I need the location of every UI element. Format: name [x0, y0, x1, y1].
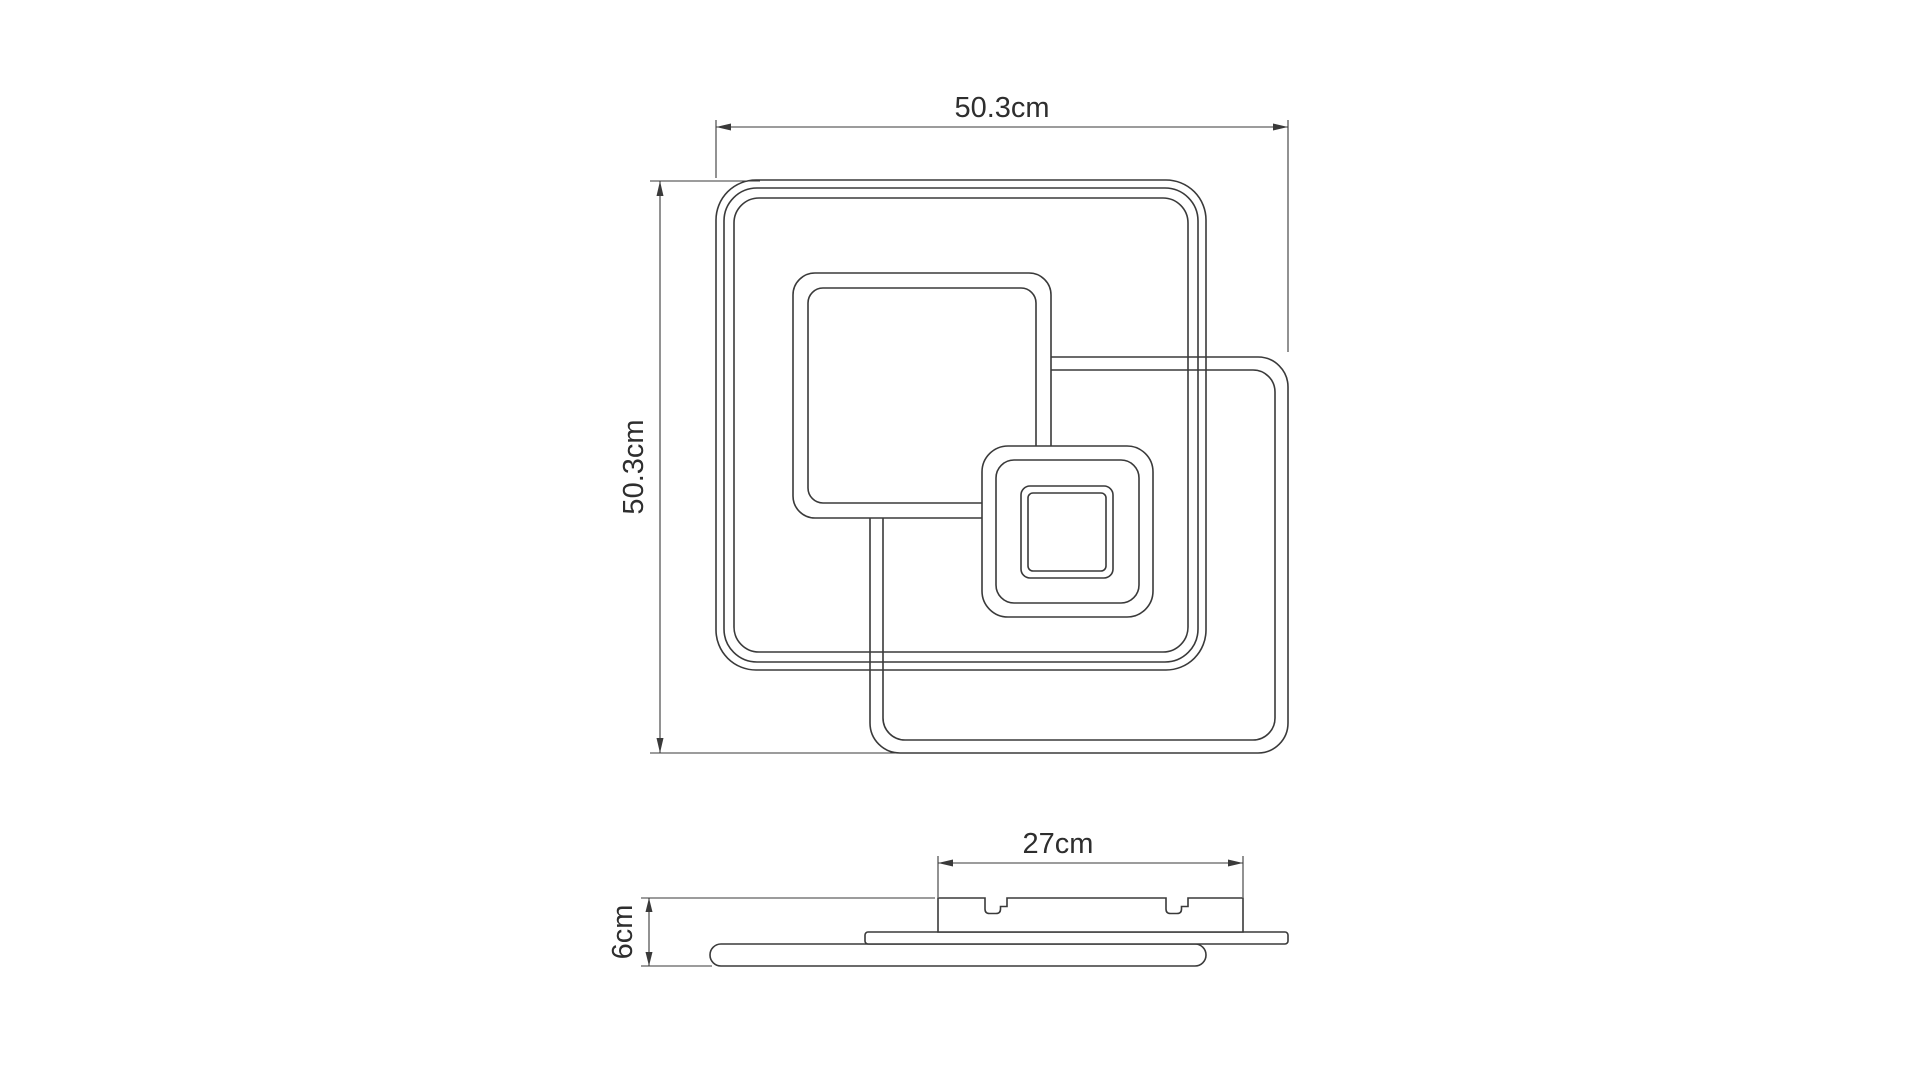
side-second-panel — [865, 932, 1288, 944]
top-view — [716, 180, 1288, 753]
arrowhead-left-icon — [716, 124, 731, 131]
plate-width-dimension-label: 27cm — [1023, 828, 1094, 860]
arrowhead-right-icon — [1273, 124, 1288, 131]
plate-width-dimension: 27cm — [938, 828, 1243, 897]
side-view — [710, 898, 1288, 966]
width-dimension-label: 50.3cm — [954, 92, 1049, 124]
arrowhead-down-icon — [646, 952, 653, 966]
side-main-panel — [710, 944, 1206, 966]
ceiling-lamp-dimension-drawing: 50.3cm 50.3cm 27cm — [0, 0, 1920, 1080]
small-center-panel — [982, 446, 1153, 617]
arrowhead-down-icon — [657, 738, 664, 753]
height-dimension-label: 50.3cm — [618, 419, 650, 514]
arrowhead-right-icon — [1228, 860, 1243, 867]
technical-drawing-page: 50.3cm 50.3cm 27cm — [0, 0, 1920, 1080]
arrowhead-left-icon — [938, 860, 953, 867]
arrowhead-up-icon — [646, 898, 653, 912]
arrowhead-up-icon — [657, 181, 664, 196]
side-mount-plate — [938, 898, 1243, 932]
depth-dimension-label: 6cm — [607, 905, 639, 960]
